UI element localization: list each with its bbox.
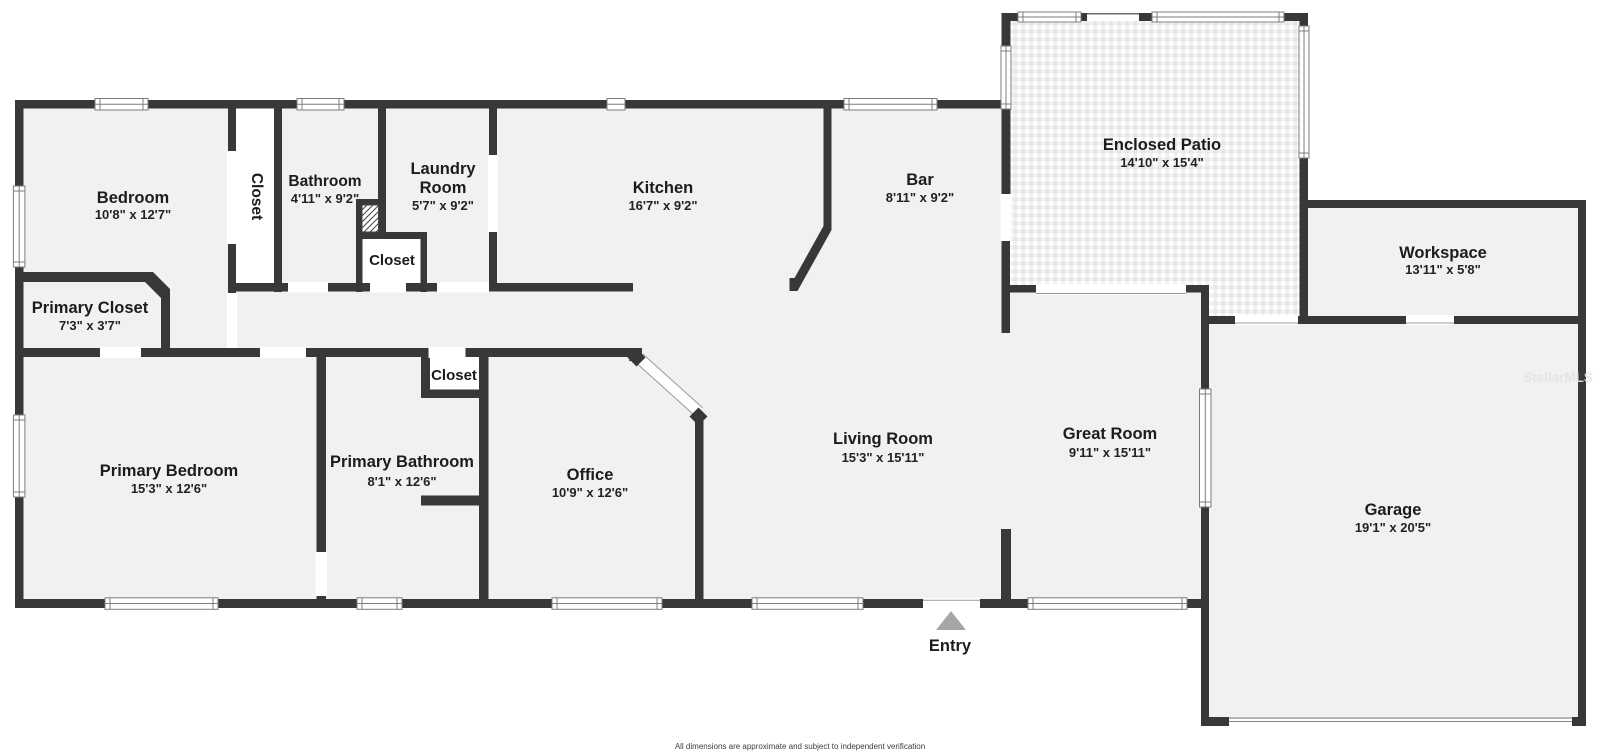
svg-text:16'7" x 9'2": 16'7" x 9'2" — [628, 198, 697, 213]
svg-text:13'11" x 5'8": 13'11" x 5'8" — [1405, 262, 1481, 277]
svg-text:Closet: Closet — [248, 173, 265, 220]
svg-text:Bedroom: Bedroom — [97, 189, 169, 207]
svg-text:Primary Bedroom: Primary Bedroom — [100, 462, 238, 480]
svg-text:Office: Office — [567, 466, 614, 484]
svg-text:15'3" x 15'11": 15'3" x 15'11" — [842, 450, 925, 465]
svg-text:Garage: Garage — [1365, 501, 1422, 519]
svg-text:8'1" x 12'6": 8'1" x 12'6" — [367, 474, 436, 489]
svg-text:All dimensions are approximate: All dimensions are approximate and subje… — [675, 742, 925, 751]
svg-text:5'7" x 9'2": 5'7" x 9'2" — [412, 198, 474, 213]
svg-text:Primary Bathroom: Primary Bathroom — [330, 453, 474, 471]
svg-text:4'11" x 9'2": 4'11" x 9'2" — [291, 191, 359, 206]
svg-text:Great Room: Great Room — [1063, 425, 1157, 443]
svg-text:StellarMLS: StellarMLS — [1523, 370, 1593, 385]
svg-text:Closet: Closet — [431, 367, 477, 384]
svg-text:Workspace: Workspace — [1399, 244, 1487, 262]
svg-text:10'8" x 12'7": 10'8" x 12'7" — [95, 207, 171, 222]
svg-text:7'3" x 3'7": 7'3" x 3'7" — [59, 318, 121, 333]
svg-text:Laundry: Laundry — [410, 160, 476, 178]
svg-text:Room: Room — [420, 179, 467, 197]
svg-text:Bar: Bar — [906, 171, 934, 189]
svg-text:14'10" x 15'4": 14'10" x 15'4" — [1120, 155, 1204, 170]
svg-text:Living Room: Living Room — [833, 430, 933, 448]
svg-text:Bathroom: Bathroom — [288, 173, 361, 190]
svg-text:15'3" x 12'6": 15'3" x 12'6" — [131, 481, 207, 496]
svg-text:9'11" x 15'11": 9'11" x 15'11" — [1069, 445, 1151, 460]
svg-text:19'1" x 20'5": 19'1" x 20'5" — [1355, 520, 1431, 535]
svg-text:10'9" x 12'6": 10'9" x 12'6" — [552, 485, 628, 500]
svg-text:Primary Closet: Primary Closet — [32, 299, 149, 317]
svg-text:Entry: Entry — [929, 637, 972, 655]
svg-text:8'11" x 9'2": 8'11" x 9'2" — [886, 190, 954, 205]
svg-text:Kitchen: Kitchen — [633, 179, 694, 197]
svg-text:Enclosed Patio: Enclosed Patio — [1103, 136, 1221, 154]
svg-text:Closet: Closet — [369, 252, 415, 269]
